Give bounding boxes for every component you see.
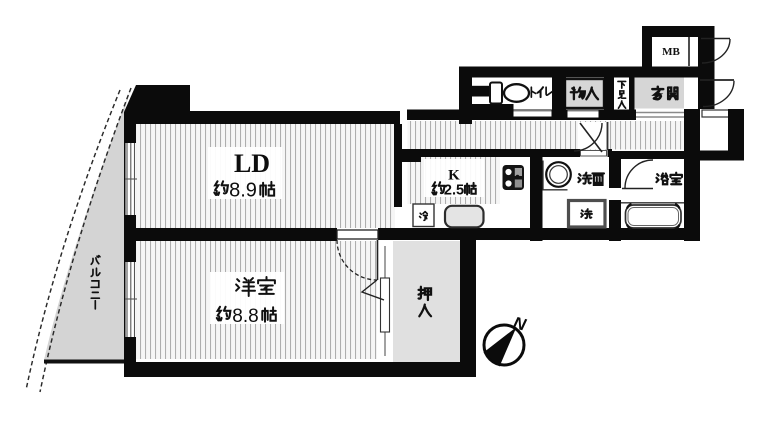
svg-text:K: K (448, 168, 460, 184)
svg-text:LD: LD (234, 149, 270, 178)
svg-text:8.8: 8.8 (232, 306, 258, 327)
svg-text:2.5: 2.5 (444, 183, 464, 199)
svg-text:MB: MB (662, 46, 680, 58)
svg-text:8.9: 8.9 (229, 180, 257, 202)
